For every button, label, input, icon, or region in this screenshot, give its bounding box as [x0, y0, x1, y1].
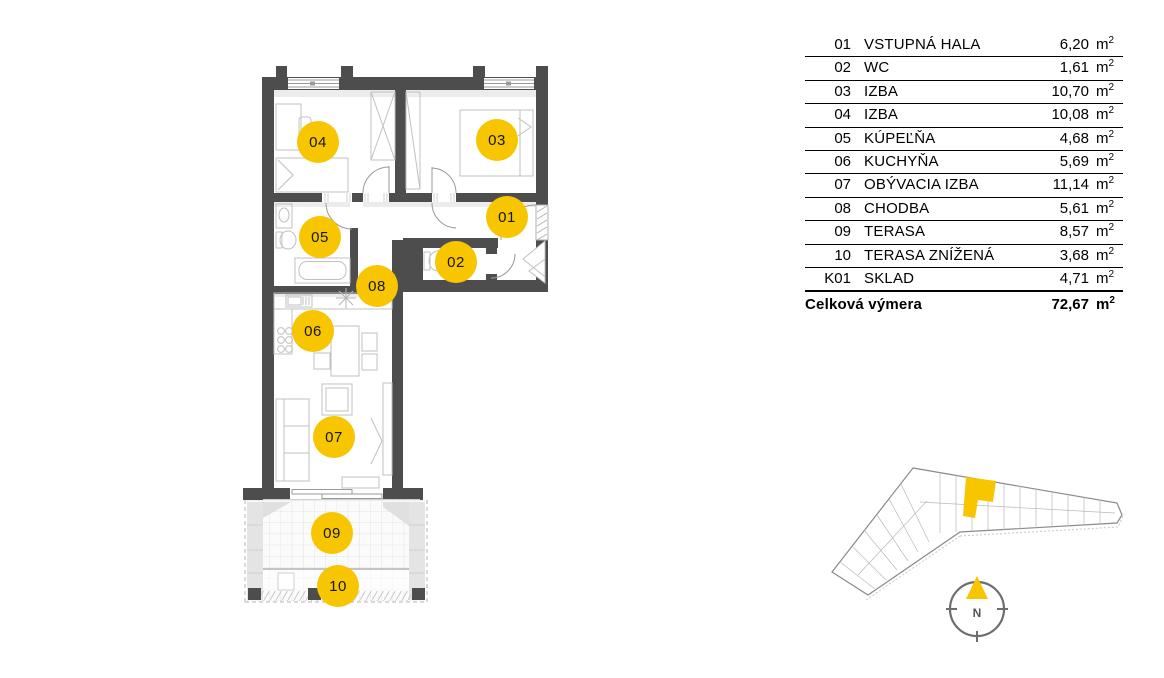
room-name: CHODBA: [864, 198, 1060, 220]
room-number: 02: [805, 57, 864, 79]
area-unit: m2: [1089, 104, 1123, 126]
total-area-unit: m2: [1089, 296, 1123, 313]
table-row: 04IZBA10,08m2: [805, 104, 1123, 127]
room-name: TERASA ZNÍŽENÁ: [864, 245, 1060, 267]
room-number: 01: [805, 34, 864, 56]
room-area: 1,61: [1060, 57, 1089, 79]
room-number: 05: [805, 128, 864, 150]
area-unit: m2: [1089, 221, 1123, 243]
room-number: 09: [805, 221, 864, 243]
table-row: 03IZBA10,70m2: [805, 81, 1123, 104]
room-name: TERASA: [864, 221, 1060, 243]
terrace-area: [245, 500, 427, 602]
compass: N: [946, 576, 1008, 642]
area-unit: m2: [1089, 34, 1123, 56]
room-area: 8,57: [1060, 221, 1089, 243]
room-area: 11,14: [1053, 174, 1089, 196]
room-number: 03: [805, 81, 864, 103]
room-area: 6,20: [1060, 34, 1089, 56]
table-row: 07OBÝVACIA IZBA11,14m2: [805, 174, 1123, 197]
area-unit: m2: [1089, 151, 1123, 173]
room-name: KUCHYŇA: [864, 151, 1060, 173]
room-name: SKLAD: [864, 268, 1060, 290]
room-legend-rows: 01VSTUPNÁ HALA6,20m202WC1,61m203IZBA10,7…: [805, 34, 1123, 292]
room-name: VSTUPNÁ HALA: [864, 34, 1060, 56]
area-unit: m2: [1089, 268, 1123, 290]
room-area: 3,68: [1060, 245, 1089, 267]
room-name: OBÝVACIA IZBA: [864, 174, 1053, 196]
table-row: 09TERASA8,57m2: [805, 221, 1123, 244]
north-needle-icon: [966, 576, 988, 599]
room-area: 5,61: [1060, 198, 1089, 220]
north-label: N: [973, 606, 982, 620]
room-name: WC: [864, 57, 1060, 79]
total-row: Celková výmera 72,67 m2: [805, 292, 1123, 317]
area-unit: m2: [1089, 81, 1123, 103]
area-unit: m2: [1089, 198, 1123, 220]
area-unit: m2: [1089, 245, 1123, 267]
total-area: 72,67: [1051, 296, 1089, 313]
room-name: IZBA: [864, 81, 1051, 103]
table-row: 06KUCHYŇA5,69m2: [805, 151, 1123, 174]
total-label: Celková výmera: [805, 296, 1051, 313]
room-area: 10,08: [1051, 104, 1089, 126]
area-unit: m2: [1089, 57, 1123, 79]
room-name: KÚPEĽŇA: [864, 128, 1060, 150]
table-row: K01SKLAD4,71m2: [805, 268, 1123, 292]
room-area: 4,68: [1060, 128, 1089, 150]
entrance-door-glyph: [536, 205, 548, 240]
site-overview: N: [820, 450, 1130, 655]
room-legend-table: 01VSTUPNÁ HALA6,20m202WC1,61m203IZBA10,7…: [805, 34, 1123, 317]
table-row: 01VSTUPNÁ HALA6,20m2: [805, 34, 1123, 57]
room-number: K01: [805, 268, 864, 290]
room-area: 10,70: [1051, 81, 1089, 103]
area-unit: m2: [1089, 174, 1123, 196]
apartment-floorplan: [0, 0, 600, 678]
hob-symbol: [336, 288, 356, 308]
room-number: 08: [805, 198, 864, 220]
room-number: 10: [805, 245, 864, 267]
area-unit: m2: [1089, 128, 1123, 150]
table-row: 08CHODBA5,61m2: [805, 198, 1123, 221]
room-name: IZBA: [864, 104, 1051, 126]
room-number: 07: [805, 174, 864, 196]
table-row: 02WC1,61m2: [805, 57, 1123, 80]
table-row: 05KÚPEĽŇA4,68m2: [805, 128, 1123, 151]
room-number: 06: [805, 151, 864, 173]
room-area: 5,69: [1060, 151, 1089, 173]
room-number: 04: [805, 104, 864, 126]
room-area: 4,71: [1060, 268, 1089, 290]
table-row: 10TERASA ZNÍŽENÁ3,68m2: [805, 245, 1123, 268]
floorplan-page: 04030105020806070910 01VSTUPNÁ HALA6,20m…: [0, 0, 1164, 678]
